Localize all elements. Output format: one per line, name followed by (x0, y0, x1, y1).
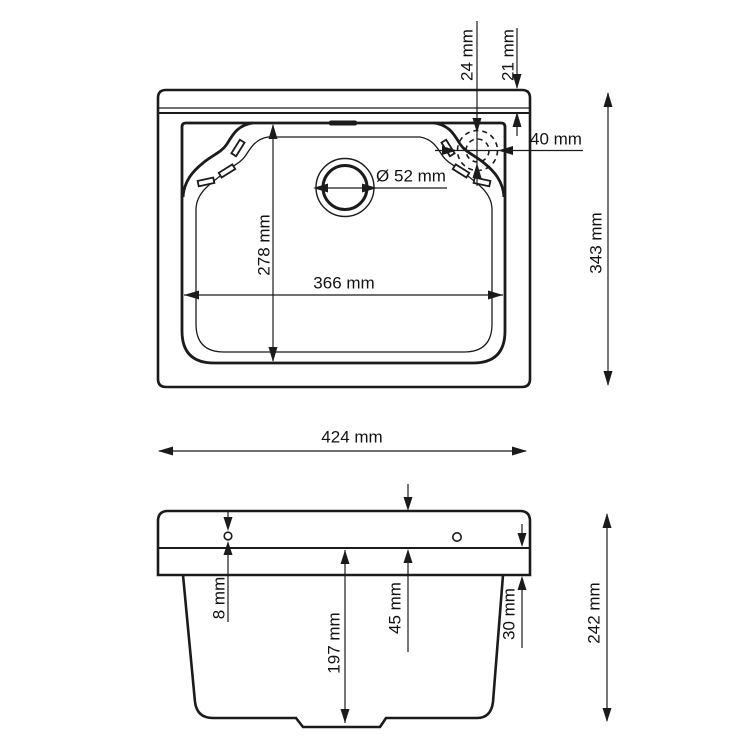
dim-label-242mm: 242 mm (585, 582, 604, 643)
dim-label-197mm: 197 mm (325, 612, 344, 673)
dim-label-21mm: 21 mm (499, 29, 518, 81)
dim-label-40mm: 40 mm (530, 130, 582, 149)
sink-technical-drawing: 24 mm 21 mm 40 mm Ø 52 mm (0, 0, 750, 750)
dim-label-45mm: 45 mm (386, 582, 405, 634)
front-rim-outline (158, 511, 530, 575)
dim-label-424mm: 424 mm (321, 428, 382, 447)
front-hole-left (224, 532, 232, 540)
top-view-outline (158, 90, 530, 387)
top-view: 24 mm 21 mm 40 mm Ø 52 mm (158, 21, 613, 456)
dim-label-24mm: 24 mm (458, 29, 477, 81)
dimension-424mm: 424 mm (158, 428, 527, 456)
drawing-canvas: 24 mm 21 mm 40 mm Ø 52 mm (0, 0, 750, 750)
dim-label-30mm: 30 mm (500, 588, 519, 640)
dim-label-343mm: 343 mm (587, 212, 606, 273)
dim-label-drain: Ø 52 mm (376, 167, 446, 186)
dimension-8mm: 8 mm (210, 512, 233, 622)
dimension-30mm: 30 mm (500, 524, 527, 648)
dimension-45mm: 45 mm (386, 484, 413, 652)
dim-label-278mm: 278 mm (255, 214, 274, 275)
dimension-24mm: 24 mm (458, 21, 482, 186)
corner-curve-right (434, 123, 504, 197)
front-hole-right (453, 533, 461, 541)
dimension-366mm: 366 mm (184, 274, 503, 300)
dimension-40mm: 40 mm (435, 130, 583, 156)
dimension-343mm: 343 mm (587, 92, 613, 386)
front-view: 8 mm 45 mm 30 mm 197 mm (158, 484, 612, 727)
dimension-242mm: 242 mm (585, 513, 612, 722)
overflow-mark (329, 121, 357, 126)
dimension-278mm: 278 mm (255, 124, 278, 362)
dim-label-366mm: 366 mm (313, 274, 374, 293)
dim-label-8mm: 8 mm (210, 577, 229, 620)
basin-inner-outline (196, 137, 492, 352)
dimension-21mm: 21 mm (499, 28, 522, 136)
